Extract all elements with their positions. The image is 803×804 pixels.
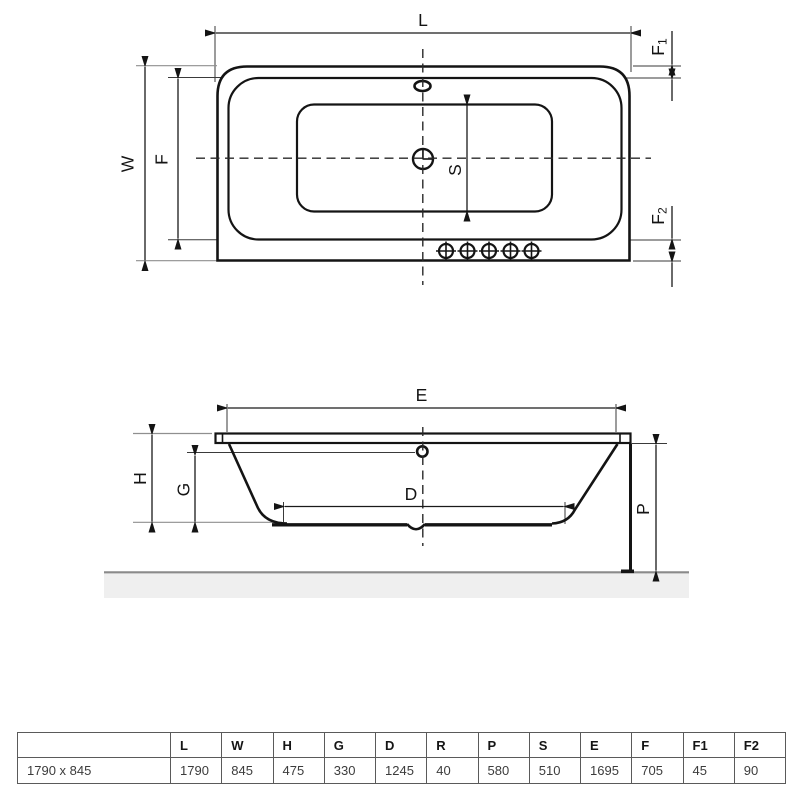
tub-profile-right: [552, 444, 618, 524]
table-header-cell: F2: [734, 733, 785, 758]
dim-label-W: W: [118, 155, 138, 172]
dim-label-F2: F2: [648, 207, 670, 225]
value-cell: 1245: [376, 758, 427, 784]
value-cell: 1695: [581, 758, 632, 784]
dim-label-P: P: [633, 503, 653, 515]
table-header-cell: E: [581, 733, 632, 758]
table-header-cell: W: [222, 733, 273, 758]
bathtub-technical-drawing: L W F S F1 F2: [0, 0, 803, 730]
table-row: 1790 x 845 1790 845 475 330 1245 40 580 …: [18, 758, 786, 784]
value-cell: 1790: [171, 758, 222, 784]
table-header-cell: P: [478, 733, 529, 758]
drain-notch: [407, 524, 425, 529]
value-cell: 475: [273, 758, 324, 784]
table-header-cell: D: [376, 733, 427, 758]
size-label-cell: 1790 x 845: [18, 758, 171, 784]
value-cell: 45: [683, 758, 734, 784]
dim-label-G: G: [174, 483, 194, 497]
value-cell: 330: [324, 758, 375, 784]
dim-label-E: E: [416, 385, 428, 405]
value-cell: 510: [529, 758, 580, 784]
dim-label-L: L: [418, 10, 428, 30]
tub-profile-left: [229, 444, 287, 524]
value-cell: 705: [632, 758, 683, 784]
top-view: L W F S F1 F2: [118, 10, 682, 287]
dimensions-table: L W H G D R P S E F F1 F2 1790 x 845 179…: [17, 732, 786, 784]
side-view: E H G D P: [104, 385, 689, 598]
dim-label-D: D: [405, 484, 418, 504]
dim-label-H: H: [130, 472, 150, 485]
table-header-cell: [18, 733, 171, 758]
value-cell: 845: [222, 758, 273, 784]
table-header-cell: L: [171, 733, 222, 758]
table-header-cell: S: [529, 733, 580, 758]
value-cell: 580: [478, 758, 529, 784]
table-header-cell: G: [324, 733, 375, 758]
table-header-cell: R: [427, 733, 478, 758]
table-header-cell: F1: [683, 733, 734, 758]
dim-label-F1: F1: [648, 38, 670, 56]
floor: [104, 573, 689, 598]
value-cell: 40: [427, 758, 478, 784]
dim-label-S: S: [445, 164, 465, 176]
dim-label-F: F: [152, 154, 172, 165]
table-header-row: L W H G D R P S E F F1 F2: [18, 733, 786, 758]
table-header-cell: F: [632, 733, 683, 758]
value-cell: 90: [734, 758, 785, 784]
table-header-cell: H: [273, 733, 324, 758]
